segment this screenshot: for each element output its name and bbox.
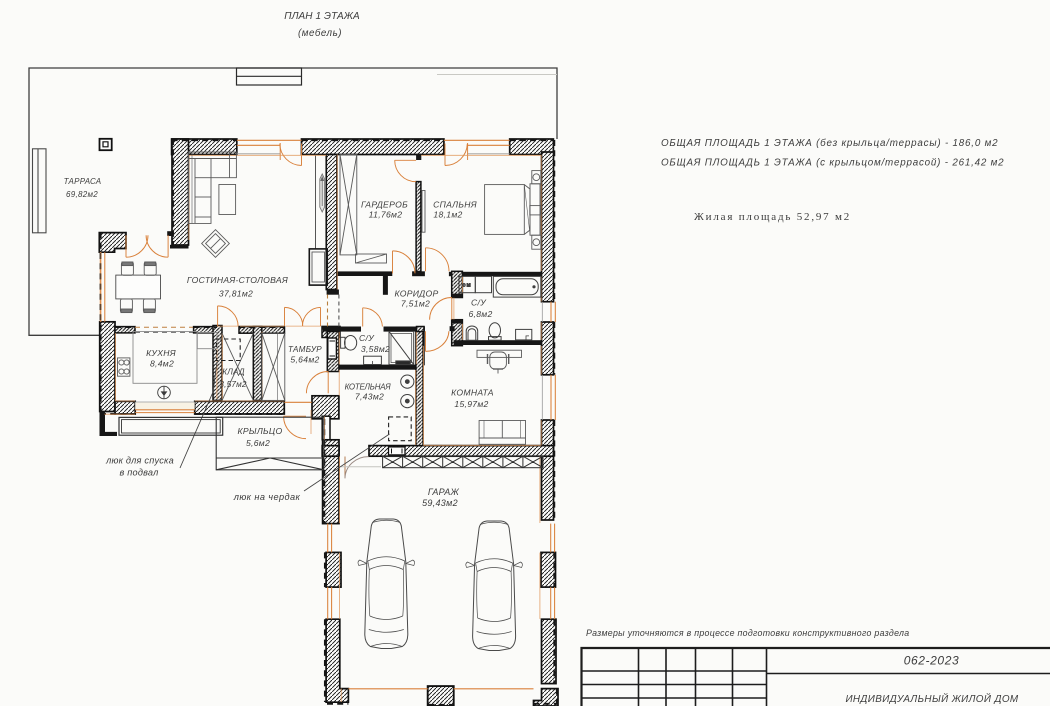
svg-text:3,57м2: 3,57м2 xyxy=(219,380,247,389)
svg-text:С/У: С/У xyxy=(471,298,487,308)
svg-text:6,8м2: 6,8м2 xyxy=(468,309,492,319)
svg-text:ПЛАН 1 ЭТАЖА: ПЛАН 1 ЭТАЖА xyxy=(284,11,360,22)
svg-text:Размеры уточняются в процессе: Размеры уточняются в процессе подготовки… xyxy=(586,628,909,638)
svg-text:КОРИДОР: КОРИДОР xyxy=(394,289,438,299)
svg-text:ГАРАЖ: ГАРАЖ xyxy=(428,487,460,497)
svg-text:ТАМБУР: ТАМБУР xyxy=(288,345,322,354)
svg-text:062-2023: 062-2023 xyxy=(904,654,960,668)
svg-text:КУХНЯ: КУХНЯ xyxy=(146,348,176,358)
svg-text:ОБЩАЯ ПЛОЩАДЬ 1 ЭТАЖА (с крыль: ОБЩАЯ ПЛОЩАДЬ 1 ЭТАЖА (с крыльцом/террас… xyxy=(661,158,1004,169)
svg-text:Жилая площадь 52,97 м2: Жилая площадь 52,97 м2 xyxy=(694,211,851,223)
svg-text:18,1м2: 18,1м2 xyxy=(433,210,462,220)
svg-text:59,43м2: 59,43м2 xyxy=(422,498,458,508)
svg-text:КОМНАТА: КОМНАТА xyxy=(451,388,494,398)
svg-text:люк на чердак: люк на чердак xyxy=(233,492,301,502)
svg-text:3,58м2: 3,58м2 xyxy=(361,344,390,354)
svg-text:15,97м2: 15,97м2 xyxy=(454,399,488,409)
svg-text:7,51м2: 7,51м2 xyxy=(401,299,430,309)
svg-text:5,6м2: 5,6м2 xyxy=(246,438,270,448)
svg-text:КЛАД: КЛАД xyxy=(222,368,245,377)
svg-text:8,4м2: 8,4м2 xyxy=(150,359,174,369)
svg-text:69,82м2: 69,82м2 xyxy=(66,190,98,199)
svg-text:КОТЕЛЬНАЯ: КОТЕЛЬНАЯ xyxy=(345,383,392,392)
svg-text:ГАРДЕРОБ: ГАРДЕРОБ xyxy=(361,200,408,210)
svg-text:СПАЛЬНЯ: СПАЛЬНЯ xyxy=(433,200,477,210)
svg-text:С/У: С/У xyxy=(359,333,375,343)
svg-text:37,81м2: 37,81м2 xyxy=(219,289,253,299)
svg-text:ГОСТИНАЯ-СТОЛОВАЯ: ГОСТИНАЯ-СТОЛОВАЯ xyxy=(187,275,288,285)
svg-text:(мебель): (мебель) xyxy=(298,28,342,39)
svg-text:ОБЩАЯ ПЛОЩАДЬ 1 ЭТАЖА (без кры: ОБЩАЯ ПЛОЩАДЬ 1 ЭТАЖА (без крыльца/терра… xyxy=(661,138,998,149)
svg-text:см: см xyxy=(463,283,472,289)
svg-text:КРЫЛЬЦО: КРЫЛЬЦО xyxy=(238,426,283,436)
svg-text:люк для спуска: люк для спуска xyxy=(105,456,174,466)
svg-text:7,43м2: 7,43м2 xyxy=(355,392,384,402)
svg-text:в подвал: в подвал xyxy=(120,468,159,478)
svg-text:ТАРРАСА: ТАРРАСА xyxy=(64,177,102,186)
svg-text:5,64м2: 5,64м2 xyxy=(290,355,319,365)
svg-text:11,76м2: 11,76м2 xyxy=(369,210,403,220)
svg-text:ИНДИВИДУАЛЬНЫЙ ЖИЛОЙ ДОМ: ИНДИВИДУАЛЬНЫЙ ЖИЛОЙ ДОМ xyxy=(845,693,1018,705)
